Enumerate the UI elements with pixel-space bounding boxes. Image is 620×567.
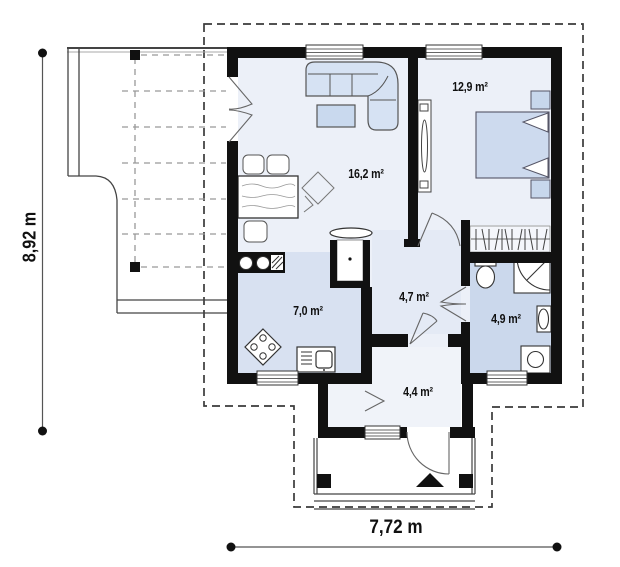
counter-sink [297,347,335,372]
kitchen-area-label: 7,0 m² [293,304,323,318]
dimension-line-width [227,543,562,552]
window [426,45,482,59]
height-dimension-label: 8,92 m [20,212,41,262]
window [306,45,363,59]
living-room-area-label: 16,2 m² [348,167,383,181]
terrace-roof-grid [122,55,226,267]
washbasin [537,306,551,332]
porch-post [459,474,473,488]
bathroom-area-label: 4,9 m² [491,312,521,326]
entrance-arrow [416,473,444,487]
bed [476,112,549,178]
dining-chair [267,155,289,174]
washing-machine [521,346,550,373]
porch-post [317,474,331,488]
floor-plan-drawing [0,0,620,567]
width-dimension-label: 7,72 m [369,517,422,539]
tv-cabinet [418,100,431,192]
nightstand [531,180,550,198]
window [487,371,527,385]
window [365,426,400,439]
terrace [67,48,227,313]
hall-area-label: 4,7 m² [399,290,429,304]
dining-chair [244,221,267,242]
porch-post [130,262,140,272]
kitchen-sink-counter [237,252,285,273]
fireplace [330,228,372,288]
entry-floor-2 [328,384,372,427]
coffee-table [317,105,355,127]
bedroom-area-label: 12,9 m² [452,80,487,94]
porch [314,438,475,509]
dining-chair [243,155,264,174]
entry-area-label: 4,4 m² [403,385,433,399]
front-door-swing [407,432,449,474]
floor-plan: 16,2 m² 12,9 m² 7,0 m² 4,7 m² 4,9 m² 4,4… [0,0,620,567]
nightstand [531,91,550,109]
porch-post [130,50,140,60]
window [257,371,298,385]
